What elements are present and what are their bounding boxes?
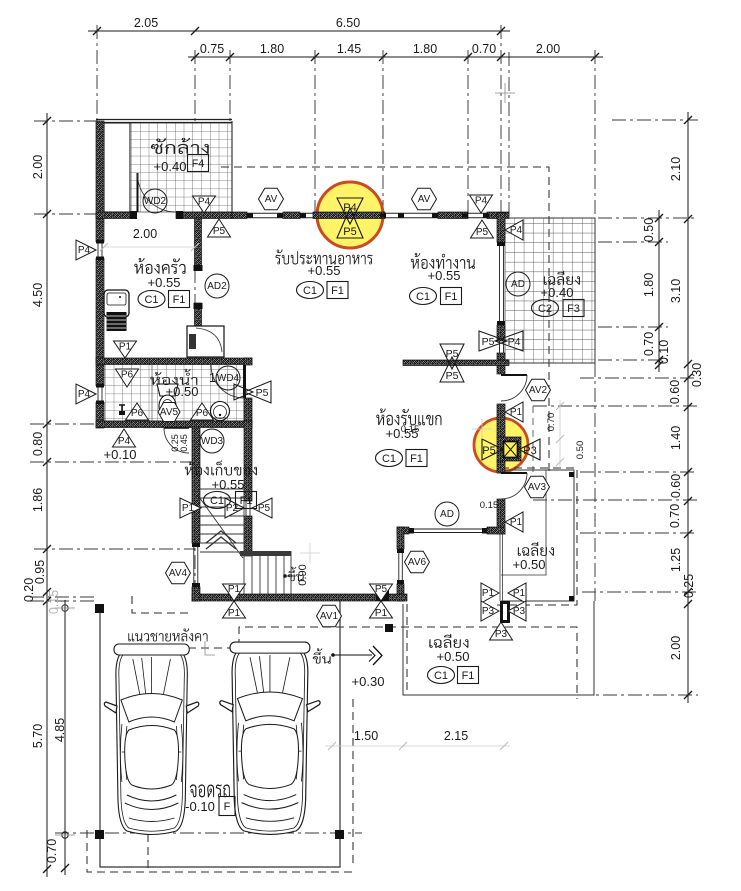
svg-text:P5: P5 xyxy=(213,226,226,237)
svg-text:F3: F3 xyxy=(567,303,580,315)
svg-text:C1: C1 xyxy=(434,670,448,682)
svg-text:P4: P4 xyxy=(78,245,91,256)
svg-text:+0.40: +0.40 xyxy=(541,285,574,300)
svg-text:F1: F1 xyxy=(410,453,423,465)
svg-text:P5: P5 xyxy=(343,226,356,238)
svg-text:1: 1 xyxy=(209,371,216,385)
svg-text:AD: AD xyxy=(440,509,454,520)
svg-text:P6: P6 xyxy=(196,408,209,419)
svg-text:P6: P6 xyxy=(131,408,144,419)
svg-text:+0.30: +0.30 xyxy=(352,674,385,689)
svg-text:0.45: 0.45 xyxy=(179,434,189,452)
svg-text:1.45: 1.45 xyxy=(337,42,361,56)
svg-text:3.10: 3.10 xyxy=(669,279,683,303)
svg-text:2.15: 2.15 xyxy=(444,729,468,743)
svg-text:2.00: 2.00 xyxy=(536,42,560,56)
svg-text:+0.50: +0.50 xyxy=(513,557,546,572)
svg-text:0.70: 0.70 xyxy=(45,839,59,863)
svg-text:P3: P3 xyxy=(495,629,508,640)
svg-text:P1: P1 xyxy=(513,588,526,599)
svg-text:0.15: 0.15 xyxy=(47,590,61,614)
svg-text:P5: P5 xyxy=(482,445,495,457)
svg-text:+0.55: +0.55 xyxy=(428,268,461,283)
svg-text:C1: C1 xyxy=(144,294,158,306)
svg-text:2.00: 2.00 xyxy=(31,155,45,179)
svg-text:WD2: WD2 xyxy=(144,196,167,207)
svg-text:0.50: 0.50 xyxy=(642,218,656,242)
svg-text:P1: P1 xyxy=(228,608,241,619)
svg-text:0.80: 0.80 xyxy=(31,432,45,456)
svg-text:+0.55: +0.55 xyxy=(148,275,181,290)
svg-text:+0.50: +0.50 xyxy=(166,384,199,399)
svg-text:0.20: 0.20 xyxy=(22,578,36,602)
svg-text:1.50: 1.50 xyxy=(354,729,378,743)
svg-text:P5: P5 xyxy=(446,370,459,382)
svg-text:0.30: 0.30 xyxy=(690,363,704,387)
svg-text:P1: P1 xyxy=(510,517,523,528)
svg-text:0.60: 0.60 xyxy=(668,380,682,404)
svg-text:0.10: 0.10 xyxy=(657,340,671,364)
svg-text:AV: AV xyxy=(265,194,278,205)
svg-text:0.25: 0.25 xyxy=(682,574,696,598)
svg-text:F1: F1 xyxy=(445,291,458,303)
svg-text:P4: P4 xyxy=(475,196,488,207)
svg-text:C1: C1 xyxy=(382,453,396,465)
svg-text:F1: F1 xyxy=(240,495,253,507)
svg-text:0.75: 0.75 xyxy=(200,42,224,56)
svg-text:0.60: 0.60 xyxy=(669,474,683,498)
svg-text:1.80: 1.80 xyxy=(260,42,284,56)
svg-text:P1: P1 xyxy=(482,588,495,599)
svg-text:4.50: 4.50 xyxy=(31,283,45,307)
svg-text:P1: P1 xyxy=(375,608,388,619)
svg-text:P5: P5 xyxy=(256,387,269,399)
svg-text:2.00: 2.00 xyxy=(669,636,683,660)
svg-text:AV: AV xyxy=(418,194,431,205)
svg-text:C2: C2 xyxy=(538,303,552,315)
svg-text:1.80: 1.80 xyxy=(642,273,656,297)
svg-text:P3: P3 xyxy=(482,606,495,617)
svg-text:1.25: 1.25 xyxy=(669,548,683,572)
svg-text:P1: P1 xyxy=(510,407,523,418)
svg-text:F1: F1 xyxy=(331,285,344,297)
svg-text:AD2: AD2 xyxy=(207,281,227,292)
svg-text:2.10: 2.10 xyxy=(669,157,683,181)
svg-text:F1: F1 xyxy=(462,670,475,682)
svg-text:0.15: 0.15 xyxy=(401,424,420,435)
svg-text:4.85: 4.85 xyxy=(53,718,67,742)
svg-text:0.15: 0.15 xyxy=(480,500,499,511)
svg-text:P5: P5 xyxy=(375,584,388,595)
svg-text:1.80: 1.80 xyxy=(413,42,437,56)
svg-text:AV1: AV1 xyxy=(320,611,339,622)
svg-text:AV2: AV2 xyxy=(529,385,548,396)
svg-text:F: F xyxy=(224,801,231,813)
svg-text:+0.50: +0.50 xyxy=(437,649,470,664)
svg-text:P5: P5 xyxy=(258,503,271,514)
svg-text:P4: P4 xyxy=(118,436,131,447)
svg-text:C1: C1 xyxy=(303,285,317,297)
svg-text:0.70: 0.70 xyxy=(472,42,496,56)
svg-text:AV6: AV6 xyxy=(408,557,427,568)
svg-text:P5: P5 xyxy=(482,336,495,348)
svg-text:F1: F1 xyxy=(173,294,186,306)
svg-text:+0.55: +0.55 xyxy=(212,477,245,492)
svg-text:0.90: 0.90 xyxy=(297,564,309,585)
svg-text:5.70: 5.70 xyxy=(31,724,45,748)
svg-text:0.50: 0.50 xyxy=(575,441,586,460)
svg-text:P1: P1 xyxy=(228,584,241,595)
svg-text:P6: P6 xyxy=(121,370,134,381)
svg-text:0.70: 0.70 xyxy=(642,332,656,356)
svg-text:+0.10: +0.10 xyxy=(104,447,137,462)
svg-text:P3: P3 xyxy=(513,606,526,617)
svg-text:AV5: AV5 xyxy=(160,407,179,418)
svg-text:-0.10: -0.10 xyxy=(185,799,215,814)
svg-text:AV3: AV3 xyxy=(528,482,547,493)
svg-text:P4: P4 xyxy=(510,225,523,236)
svg-text:P1: P1 xyxy=(182,503,195,514)
svg-text:WD3: WD3 xyxy=(201,436,224,447)
svg-text:WD4: WD4 xyxy=(217,373,240,384)
svg-text:P3: P3 xyxy=(523,445,536,457)
svg-text:P1: P1 xyxy=(119,342,132,353)
svg-text:+0.40: +0.40 xyxy=(154,159,187,174)
svg-text:P4: P4 xyxy=(78,389,91,400)
svg-text:C1: C1 xyxy=(210,495,224,507)
svg-text:0.70: 0.70 xyxy=(546,413,557,432)
svg-text:1.86: 1.86 xyxy=(31,488,45,512)
svg-text:P4: P4 xyxy=(198,197,211,208)
svg-text:6.50: 6.50 xyxy=(336,16,360,30)
svg-text:0.70: 0.70 xyxy=(668,504,682,528)
svg-text:F4: F4 xyxy=(192,158,205,170)
svg-text:AV4: AV4 xyxy=(169,568,188,579)
svg-text:+0.55: +0.55 xyxy=(308,263,341,278)
svg-text:1.40: 1.40 xyxy=(669,426,683,450)
svg-text:P4: P4 xyxy=(508,336,521,348)
svg-text:2.05: 2.05 xyxy=(134,16,158,30)
svg-text:P5: P5 xyxy=(476,227,489,238)
svg-text:C1: C1 xyxy=(416,291,430,303)
svg-text:AD: AD xyxy=(511,279,525,290)
svg-text:2.00: 2.00 xyxy=(133,227,157,241)
